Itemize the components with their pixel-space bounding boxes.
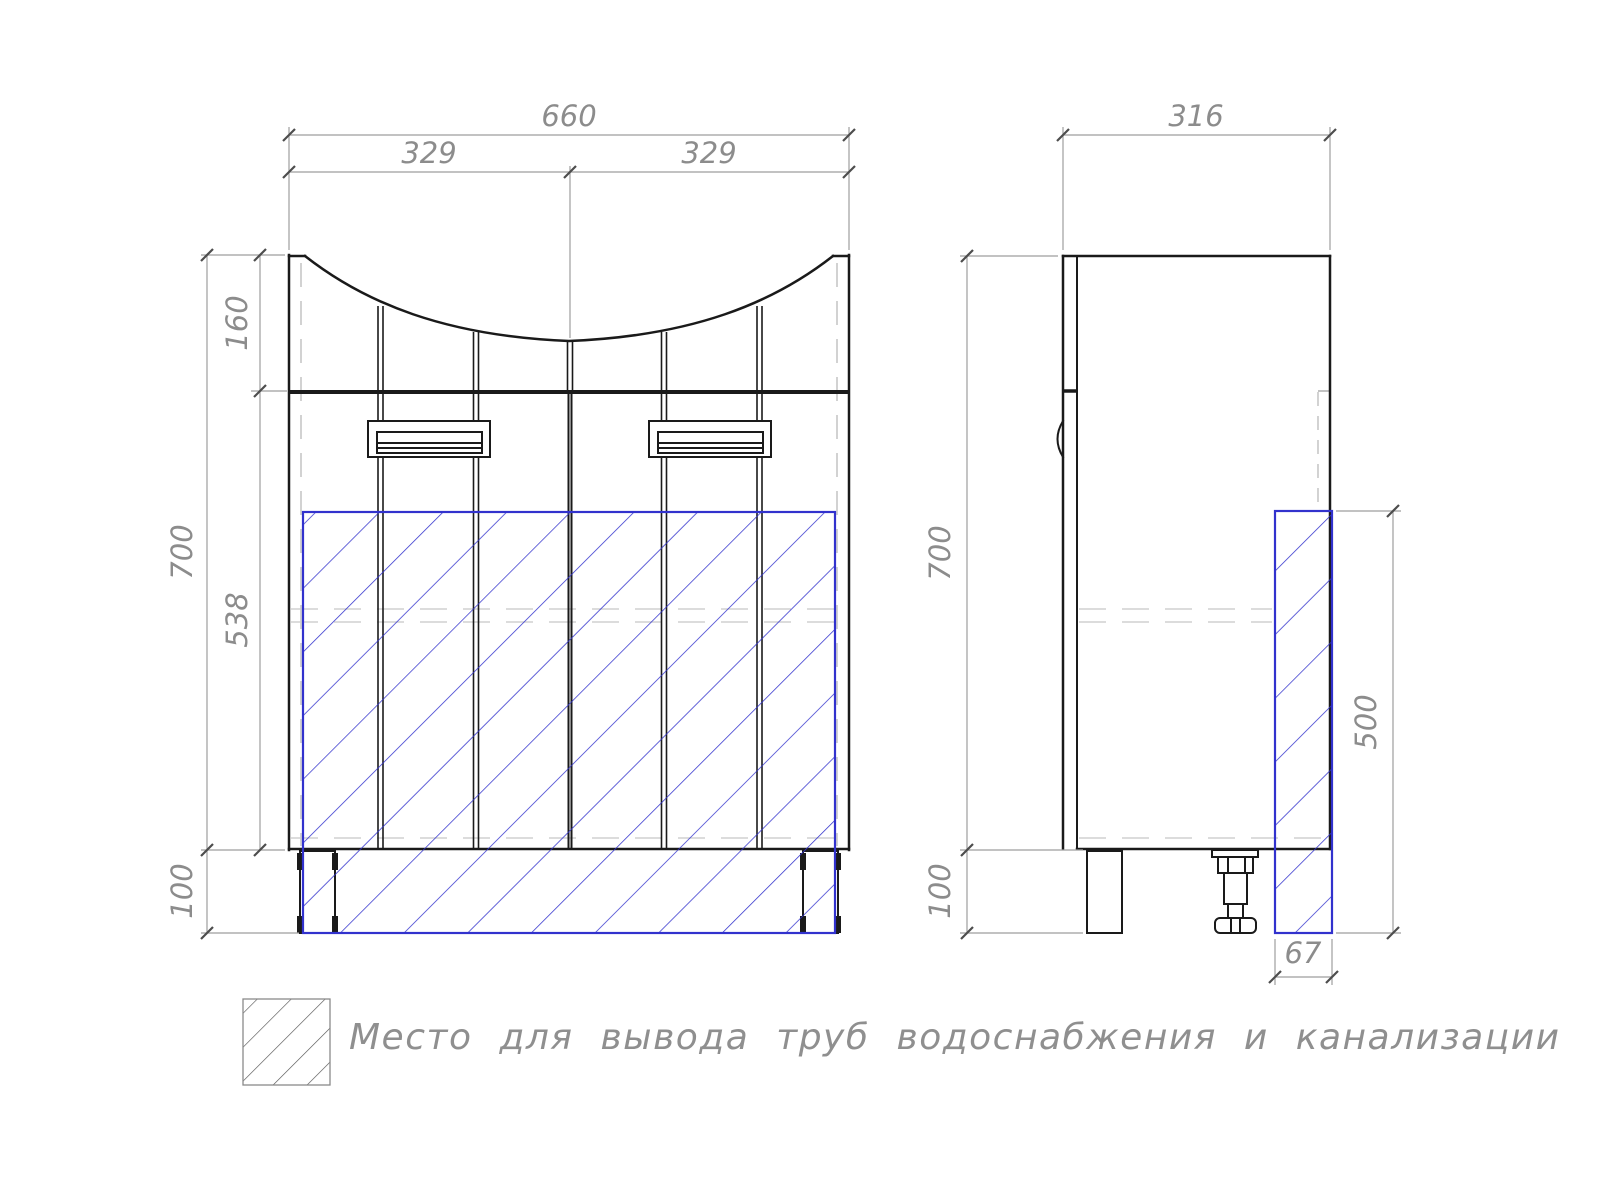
dim-depth-label: 316 (1168, 99, 1223, 133)
pipe-zone-front (303, 512, 835, 933)
dim-front-leg-height-label: 100 (165, 863, 199, 918)
dim-door-zone-height-label: 538 (220, 592, 254, 647)
sink-apron-curve (305, 256, 833, 341)
dim-overall-width-label: 660 (541, 99, 596, 133)
side-view (1058, 256, 1333, 933)
dim-pipe-zone-depth-label: 67 (1285, 936, 1322, 970)
legend: Место для вывода труб водоснабжения и ка… (243, 999, 1561, 1085)
pipe-zone-side (1275, 511, 1332, 933)
dim-side-height-label: 700 (923, 525, 957, 580)
dim-side-leg-height-label: 100 (923, 863, 957, 918)
dim-pipe-zone-height-label: 500 (1349, 694, 1383, 749)
technical-drawing-page: 660 329 329 700 160 538 100 316 700 100 (0, 0, 1600, 1200)
dim-apron-height-label: 160 (220, 295, 254, 350)
side-front-leg (1087, 851, 1122, 933)
vanity-cabinet-drawing: 660 329 329 700 160 538 100 316 700 100 (0, 0, 1600, 1200)
front-view (289, 255, 849, 933)
dim-front-height-label: 700 (165, 524, 199, 579)
adjustable-foot (1212, 850, 1258, 933)
right-door-handle (649, 421, 771, 457)
legend-hatch-swatch (243, 999, 330, 1085)
dim-door-left-label: 329 (401, 136, 456, 170)
left-door-handle (368, 421, 490, 457)
dim-door-right-label: 329 (681, 136, 736, 170)
legend-pipe-zone-label: Место для вывода труб водоснабжения и ка… (349, 1017, 1561, 1058)
